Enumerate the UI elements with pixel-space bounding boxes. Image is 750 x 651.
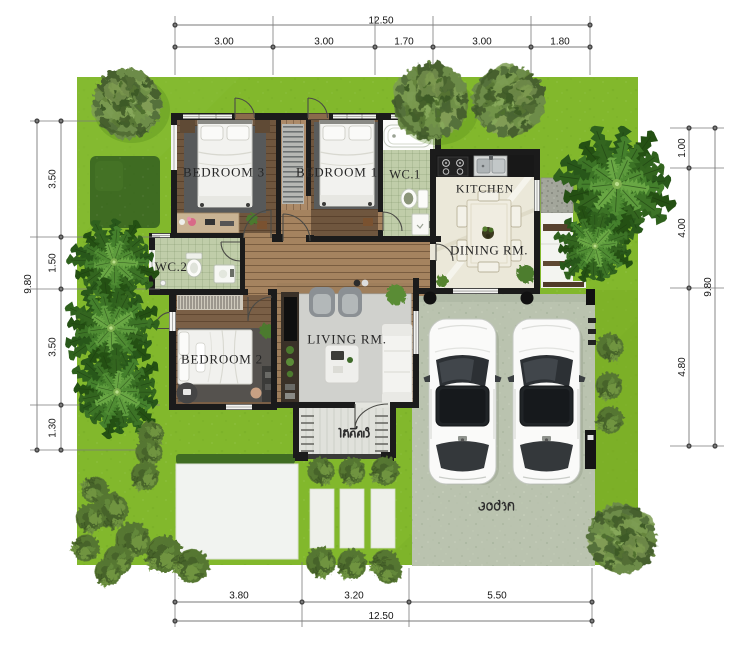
- svg-text:4.80: 4.80: [677, 357, 688, 377]
- svg-text:1.00: 1.00: [677, 138, 688, 158]
- svg-text:4.00: 4.00: [677, 218, 688, 238]
- svg-text:3.80: 3.80: [229, 591, 249, 602]
- svg-text:BEDROOM 2: BEDROOM 2: [181, 352, 263, 367]
- svg-text:BEDROOM 1: BEDROOM 1: [296, 165, 378, 180]
- svg-text:3.00: 3.00: [314, 37, 334, 48]
- svg-text:WC.2: WC.2: [155, 259, 188, 274]
- svg-text:3.20: 3.20: [344, 591, 364, 602]
- svg-text:5.50: 5.50: [487, 591, 507, 602]
- svg-text:KITCHEN: KITCHEN: [456, 182, 514, 196]
- svg-text:WC.1: WC.1: [389, 168, 421, 182]
- svg-text:1.70: 1.70: [394, 37, 414, 48]
- svg-text:1.80: 1.80: [550, 37, 570, 48]
- svg-text:3.50: 3.50: [48, 169, 59, 189]
- svg-text:LIVING RM.: LIVING RM.: [307, 332, 387, 347]
- svg-text:DINING RM.: DINING RM.: [450, 243, 528, 258]
- svg-text:9.80: 9.80: [703, 277, 714, 297]
- svg-text:3.00: 3.00: [214, 37, 234, 48]
- svg-text:12.50: 12.50: [368, 16, 393, 27]
- svg-text:BEDROOM 3: BEDROOM 3: [183, 165, 265, 180]
- svg-text:3.50: 3.50: [48, 337, 59, 357]
- svg-text:1.50: 1.50: [48, 253, 59, 273]
- svg-text:3.00: 3.00: [472, 37, 492, 48]
- svg-text:1.30: 1.30: [48, 418, 59, 438]
- svg-text:12.50: 12.50: [368, 611, 393, 622]
- svg-text:9.80: 9.80: [23, 274, 34, 294]
